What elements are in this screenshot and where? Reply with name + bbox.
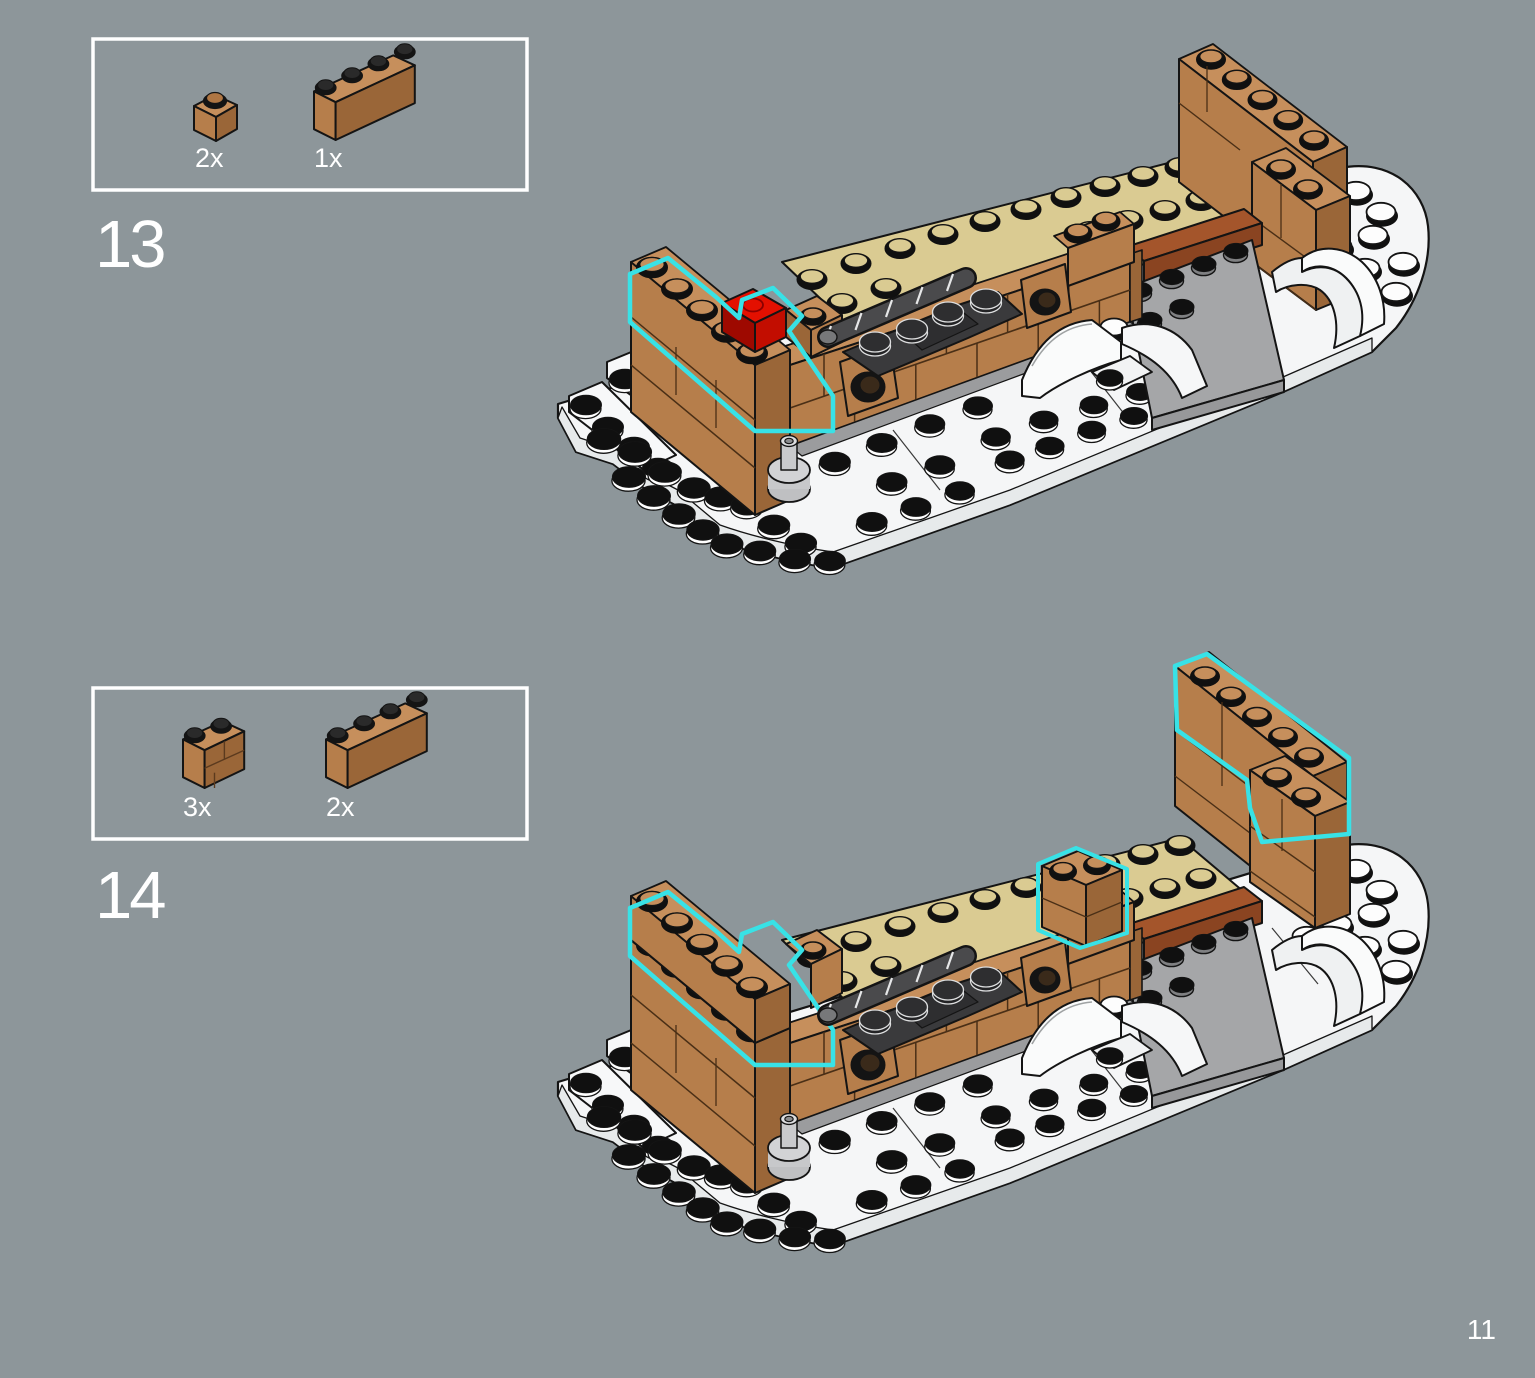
svg-text:2x: 2x bbox=[195, 143, 224, 173]
svg-text:2x: 2x bbox=[326, 792, 355, 822]
svg-text:3x: 3x bbox=[183, 792, 212, 822]
svg-text:1x: 1x bbox=[314, 143, 343, 173]
svg-text:14: 14 bbox=[95, 858, 165, 933]
svg-text:13: 13 bbox=[95, 207, 164, 282]
svg-text:11: 11 bbox=[1467, 1314, 1496, 1345]
